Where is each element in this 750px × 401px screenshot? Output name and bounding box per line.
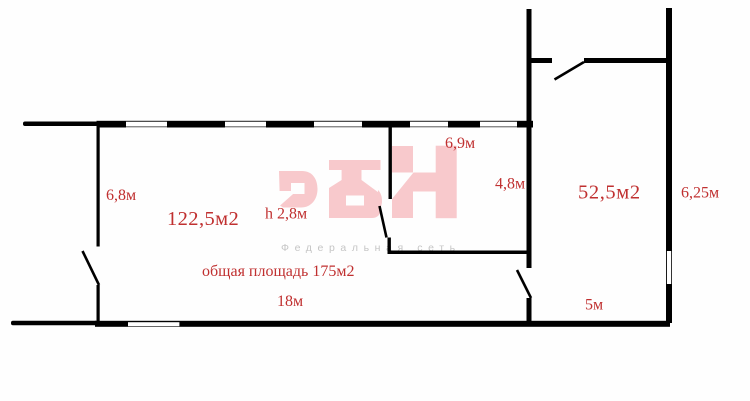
svg-text:4,8м: 4,8м (495, 175, 525, 192)
svg-text:52,5м2: 52,5м2 (578, 181, 641, 203)
svg-text:18м: 18м (277, 293, 303, 310)
svg-text:122,5м2: 122,5м2 (167, 208, 239, 230)
svg-text:6,25м: 6,25м (681, 185, 719, 202)
svg-text:6,8м: 6,8м (106, 187, 136, 204)
svg-text:5м: 5м (585, 297, 603, 314)
svg-text:6,9м: 6,9м (445, 135, 475, 152)
svg-text:h 2,8м: h 2,8м (265, 206, 307, 223)
svg-text:общая площадь 175м2: общая площадь 175м2 (202, 263, 354, 280)
